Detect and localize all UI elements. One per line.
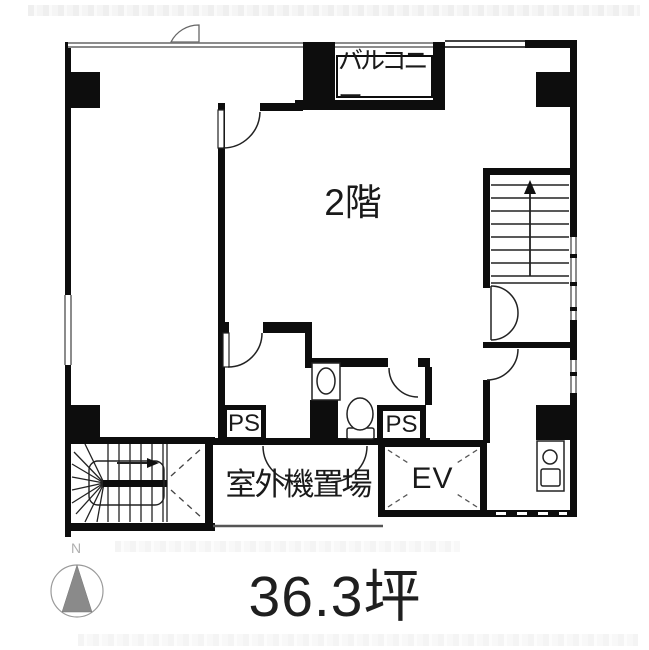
staircase-lower: [72, 444, 202, 522]
elevator-box: EV: [378, 440, 487, 517]
floor-label: 2階: [298, 178, 408, 220]
stair-break-line: [103, 480, 167, 487]
floor-plan-page: バルコニー 2階 PS PS EV 室外機置場 36.3坪 N: [0, 0, 649, 650]
door-arc: [223, 333, 262, 367]
compass-north-label: N: [66, 540, 86, 556]
staircase-upper: [491, 180, 569, 283]
door-arc: [389, 368, 418, 397]
stair-direction-arrow: [524, 180, 536, 194]
vent-notches: [496, 512, 567, 515]
window-mullions: [570, 254, 577, 376]
area-label: 36.3坪: [190, 560, 480, 624]
door-arc: [487, 349, 518, 380]
pipe-space-right-box: PS: [377, 405, 426, 444]
door-arc: [491, 286, 518, 340]
kitchen-sink-icon: [537, 441, 564, 491]
pipe-space-right-label: PS: [385, 411, 417, 439]
stair-direction-arrow: [147, 458, 159, 468]
north-arrow-icon: [62, 565, 92, 612]
toilet-icon: [347, 398, 374, 439]
pipe-space-left-box: PS: [222, 405, 266, 442]
door-arc: [171, 25, 199, 42]
elevator-label: EV: [408, 462, 456, 496]
balcony-label: バルコニー: [338, 41, 431, 113]
washbasin-icon: [312, 363, 340, 400]
door-arc: [218, 110, 260, 148]
balcony-label-box: バルコニー: [336, 55, 433, 98]
pipe-space-left-label: PS: [228, 410, 260, 438]
outdoor-unit-label: 室外機置場: [212, 461, 384, 501]
compass-icon: [51, 565, 103, 617]
